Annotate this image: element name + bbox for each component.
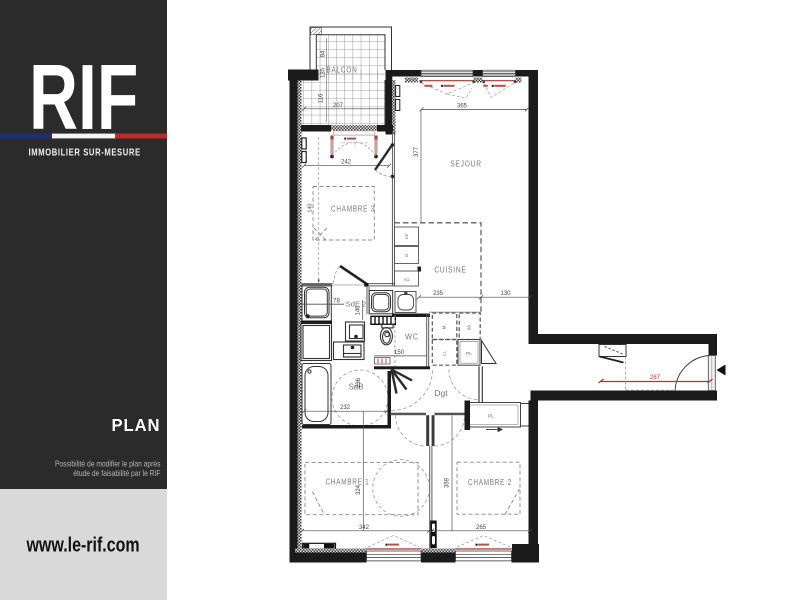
svg-text:Dgt: Dgt xyxy=(434,388,448,398)
svg-text:135: 135 xyxy=(321,67,327,78)
svg-text:359: 359 xyxy=(445,477,451,488)
svg-text:232: 232 xyxy=(340,405,351,411)
svg-text:146: 146 xyxy=(356,305,362,316)
svg-text:84: 84 xyxy=(321,50,327,57)
svg-text:324: 324 xyxy=(356,484,362,495)
svg-text:60: 60 xyxy=(467,325,472,331)
svg-text:LL: LL xyxy=(442,351,447,357)
svg-text:CHAMBRE 3: CHAMBRE 3 xyxy=(331,204,375,214)
svg-text:PL: PL xyxy=(488,414,494,420)
svg-text:242: 242 xyxy=(341,160,352,166)
svg-text:CHAMBRE 2: CHAMBRE 2 xyxy=(468,477,512,487)
svg-text:207: 207 xyxy=(333,103,344,109)
svg-text:CHAMBRE 1: CHAMBRE 1 xyxy=(326,477,370,487)
svg-text:Possibilité de modifier le pla: Possibilité de modifier le plan après xyxy=(55,459,161,469)
svg-text:265: 265 xyxy=(476,525,487,531)
svg-text:377: 377 xyxy=(414,146,420,157)
svg-text:IMMOBILIER SUR-MESURE: IMMOBILIER SUR-MESURE xyxy=(29,147,141,158)
svg-text:LV: LV xyxy=(404,234,409,239)
svg-text:78: 78 xyxy=(333,299,340,305)
svg-text:G: G xyxy=(404,253,409,257)
svg-text:PL: PL xyxy=(466,351,472,357)
svg-text:235: 235 xyxy=(433,291,444,297)
svg-text:étude de faisabilité par le RI: étude de faisabilité par le RIF xyxy=(73,468,161,478)
svg-text:116: 116 xyxy=(319,93,325,103)
svg-text:287: 287 xyxy=(650,374,661,381)
svg-text:CUISINE: CUISINE xyxy=(434,265,466,275)
svg-text:SEJOUR: SEJOUR xyxy=(450,159,482,169)
svg-text:www.le-rif.com: www.le-rif.com xyxy=(26,533,140,556)
svg-text:M: M xyxy=(442,325,447,329)
svg-text:365: 365 xyxy=(457,104,468,110)
svg-text:PLAN: PLAN xyxy=(111,416,160,435)
svg-text:150: 150 xyxy=(394,350,405,356)
svg-text:BALCON: BALCON xyxy=(326,65,357,75)
svg-text:342: 342 xyxy=(359,525,370,531)
svg-text:130: 130 xyxy=(500,291,511,297)
svg-text:A1: A1 xyxy=(404,277,410,282)
svg-text:236: 236 xyxy=(356,377,362,388)
svg-text:WC: WC xyxy=(405,332,419,342)
